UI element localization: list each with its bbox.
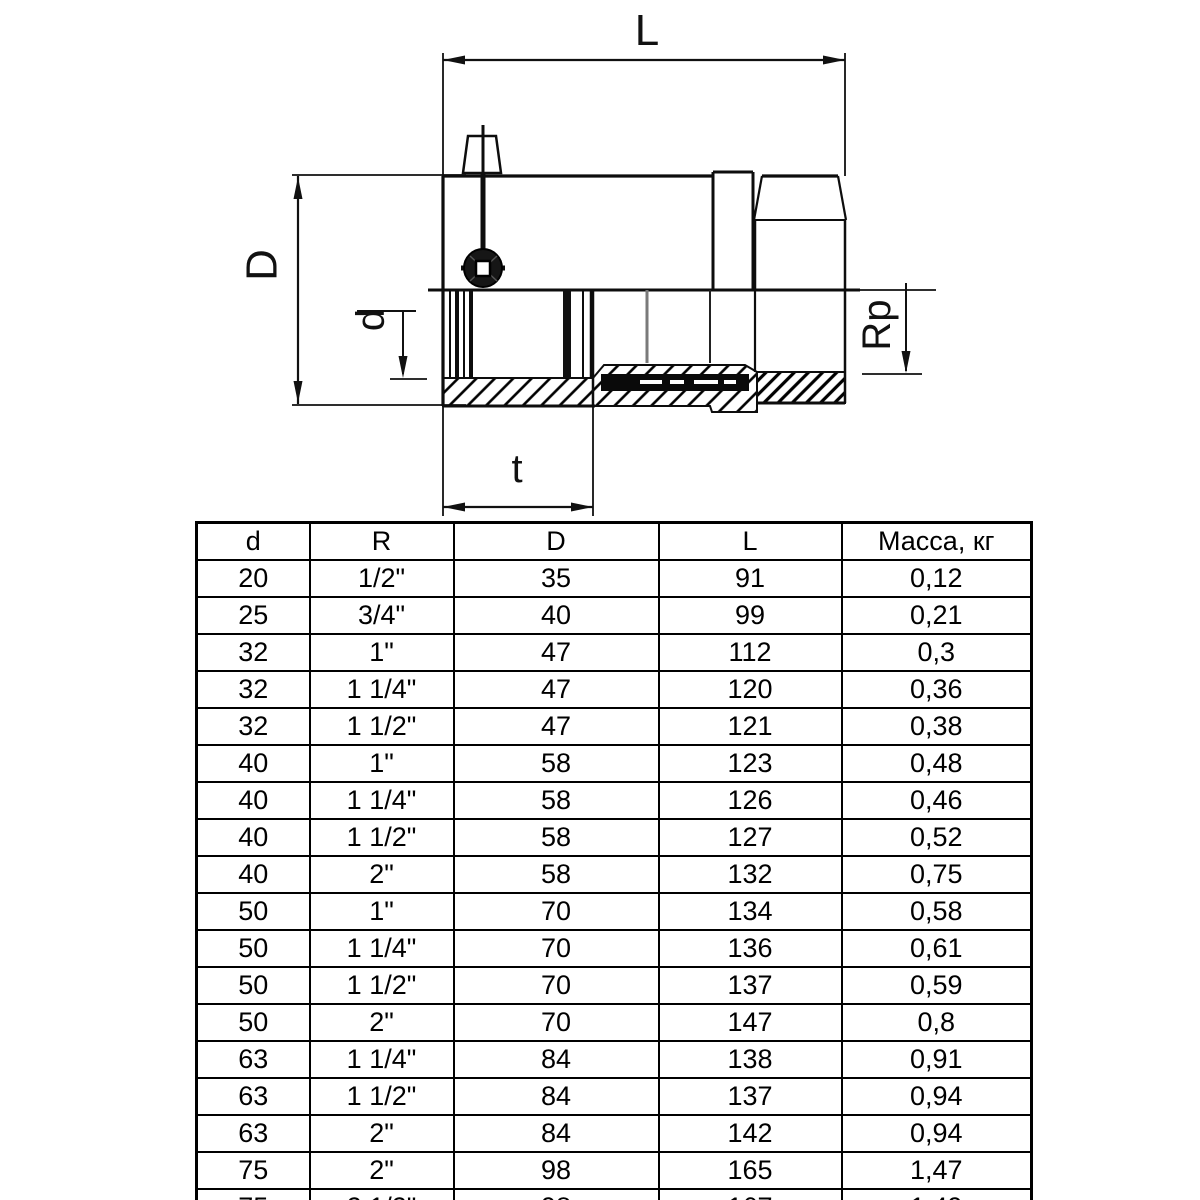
table-cell: 40 [197, 819, 310, 856]
table-cell: 35 [454, 560, 659, 597]
table-row: 253/4"40990,21 [197, 597, 1032, 634]
table-body: 201/2"35910,12253/4"40990,21321"471120,3… [197, 560, 1032, 1200]
table-row: 321 1/2"471210,38 [197, 708, 1032, 745]
table-cell: 20 [197, 560, 310, 597]
table-cell: 32 [197, 671, 310, 708]
coil-gap [724, 380, 736, 384]
table-cell: 40 [197, 745, 310, 782]
socket-stop-band [563, 290, 571, 378]
table-cell: 1 1/2" [310, 967, 454, 1004]
table-cell: 1" [310, 634, 454, 671]
dim-label-outer-diameter: D [238, 249, 287, 281]
table-cell: 47 [454, 671, 659, 708]
table-cell: 167 [659, 1189, 842, 1200]
table-cell: 84 [454, 1041, 659, 1078]
table-cell: 63 [197, 1078, 310, 1115]
table-cell: 50 [197, 1004, 310, 1041]
coil-gap [640, 380, 662, 384]
table-cell: 0,38 [842, 708, 1032, 745]
nut-wall-section [757, 372, 845, 403]
table-cell: 0,12 [842, 560, 1032, 597]
dim-label-inner-diameter: d [349, 309, 393, 331]
dim-label-length: L [635, 6, 659, 55]
dimension-L: L [443, 6, 845, 176]
table-cell: 40 [454, 597, 659, 634]
table-cell: 70 [454, 1004, 659, 1041]
table-cell: 0,58 [842, 893, 1032, 930]
table-cell: 136 [659, 930, 842, 967]
table-row: 321"471120,3 [197, 634, 1032, 671]
table-cell: 0,21 [842, 597, 1032, 634]
table-header-cell: Масса, кг [842, 523, 1032, 561]
table-cell: 75 [197, 1152, 310, 1189]
table-cell: 1/2" [310, 560, 454, 597]
table-cell: 99 [659, 597, 842, 634]
table-cell: 121 [659, 708, 842, 745]
arrowhead-right [571, 503, 593, 512]
dimensions-table: dRDLМасса, кг 201/2"35910,12253/4"40990,… [195, 521, 1033, 1200]
table-cell: 58 [454, 745, 659, 782]
table-row: 401"581230,48 [197, 745, 1032, 782]
table-row: 401 1/2"581270,52 [197, 819, 1032, 856]
table-row: 501"701340,58 [197, 893, 1032, 930]
table-header-cell: d [197, 523, 310, 561]
table-cell: 2" [310, 1004, 454, 1041]
table-cell: 1 1/4" [310, 671, 454, 708]
table-cell: 63 [197, 1041, 310, 1078]
table-cell: 70 [454, 930, 659, 967]
table-cell: 84 [454, 1078, 659, 1115]
table-cell: 32 [197, 708, 310, 745]
table-cell: 70 [454, 893, 659, 930]
coil-gap [670, 380, 684, 384]
arrowhead-left [443, 56, 465, 65]
table-cell: 137 [659, 1078, 842, 1115]
table-cell: 58 [454, 819, 659, 856]
table-cell: 3/4" [310, 597, 454, 634]
table-cell: 58 [454, 782, 659, 819]
table-cell: 58 [454, 856, 659, 893]
table-cell: 0,36 [842, 671, 1032, 708]
table-cell: 127 [659, 819, 842, 856]
arrowhead-down [294, 381, 303, 403]
dimension-t: t [443, 406, 593, 516]
hex-nut-chamfer [754, 176, 762, 220]
table-cell: 132 [659, 856, 842, 893]
table-cell: 0,94 [842, 1078, 1032, 1115]
table-cell: 0,46 [842, 782, 1032, 819]
fusion-terminal [461, 125, 505, 287]
table-cell: 2 1/2" [310, 1189, 454, 1200]
table-cell: 84 [454, 1115, 659, 1152]
table-cell: 1 1/4" [310, 1041, 454, 1078]
table-row: 752"981651,47 [197, 1152, 1032, 1189]
table-cell: 98 [454, 1152, 659, 1189]
table-row: 631 1/4"841380,91 [197, 1041, 1032, 1078]
hex-nut-chamfer [838, 176, 846, 220]
table-cell: 1 1/2" [310, 819, 454, 856]
table-cell: 1" [310, 745, 454, 782]
table-cell: 142 [659, 1115, 842, 1152]
technical-drawing: L D d Rp [0, 0, 1200, 520]
table-cell: 2" [310, 1115, 454, 1152]
table-cell: 134 [659, 893, 842, 930]
table-cell: 1 1/2" [310, 708, 454, 745]
table-cell: 2" [310, 856, 454, 893]
socket-wall-section [443, 378, 593, 406]
terminal-contact [476, 261, 490, 276]
table-cell: 126 [659, 782, 842, 819]
table-row: 321 1/4"471200,36 [197, 671, 1032, 708]
table-cell: 138 [659, 1041, 842, 1078]
page: L D d Rp [0, 0, 1200, 1200]
table-cell: 50 [197, 967, 310, 1004]
table-cell: 1 1/4" [310, 930, 454, 967]
table-cell: 137 [659, 967, 842, 1004]
table-cell: 0,61 [842, 930, 1032, 967]
arrowhead-right [823, 56, 845, 65]
table-header-cell: R [310, 523, 454, 561]
table-header-cell: D [454, 523, 659, 561]
dimension-Rp: Rp [855, 283, 936, 374]
table-cell: 1 1/2" [310, 1078, 454, 1115]
table-cell: 147 [659, 1004, 842, 1041]
table-cell: 0,75 [842, 856, 1032, 893]
table-cell: 32 [197, 634, 310, 671]
table-cell: 98 [454, 1189, 659, 1200]
table-row: 401 1/4"581260,46 [197, 782, 1032, 819]
table-cell: 112 [659, 634, 842, 671]
table-cell: 0,91 [842, 1041, 1032, 1078]
table-cell: 40 [197, 782, 310, 819]
dimension-d: d [349, 309, 427, 379]
table-cell: 70 [454, 967, 659, 1004]
table-cell: 1,47 [842, 1152, 1032, 1189]
table-cell: 25 [197, 597, 310, 634]
dim-label-thread: Rp [855, 299, 899, 350]
table-header-cell: L [659, 523, 842, 561]
arrowhead-down [399, 356, 408, 378]
table-cell: 47 [454, 708, 659, 745]
dim-label-insertion-depth: t [511, 447, 522, 491]
arrowhead-left [443, 503, 465, 512]
table-row: 501 1/2"701370,59 [197, 967, 1032, 1004]
section-view [443, 290, 845, 412]
table-cell: 123 [659, 745, 842, 782]
table-cell: 0,3 [842, 634, 1032, 671]
table-row: 752 1/2"981671,49 [197, 1189, 1032, 1200]
table-head: dRDLМасса, кг [197, 523, 1032, 561]
table-cell: 50 [197, 930, 310, 967]
table-cell: 1,49 [842, 1189, 1032, 1200]
table-row: 501 1/4"701360,61 [197, 930, 1032, 967]
table-cell: 47 [454, 634, 659, 671]
table-cell: 120 [659, 671, 842, 708]
coil-gap [694, 380, 718, 384]
table-header-row: dRDLМасса, кг [197, 523, 1032, 561]
arrowhead-up [294, 177, 303, 199]
table-cell: 1 1/4" [310, 782, 454, 819]
table-cell: 0,8 [842, 1004, 1032, 1041]
table-cell: 0,94 [842, 1115, 1032, 1152]
table-cell: 91 [659, 560, 842, 597]
table-row: 402"581320,75 [197, 856, 1032, 893]
table-cell: 165 [659, 1152, 842, 1189]
table-cell: 0,48 [842, 745, 1032, 782]
table-cell: 0,52 [842, 819, 1032, 856]
table-cell: 1" [310, 893, 454, 930]
table-cell: 63 [197, 1115, 310, 1152]
table-cell: 75 [197, 1189, 310, 1200]
table-cell: 0,59 [842, 967, 1032, 1004]
table-cell: 2" [310, 1152, 454, 1189]
table-row: 632"841420,94 [197, 1115, 1032, 1152]
arrowhead-down [902, 351, 911, 373]
table-row: 502"701470,8 [197, 1004, 1032, 1041]
table-row: 631 1/2"841370,94 [197, 1078, 1032, 1115]
table-cell: 40 [197, 856, 310, 893]
table-cell: 50 [197, 893, 310, 930]
table-row: 201/2"35910,12 [197, 560, 1032, 597]
